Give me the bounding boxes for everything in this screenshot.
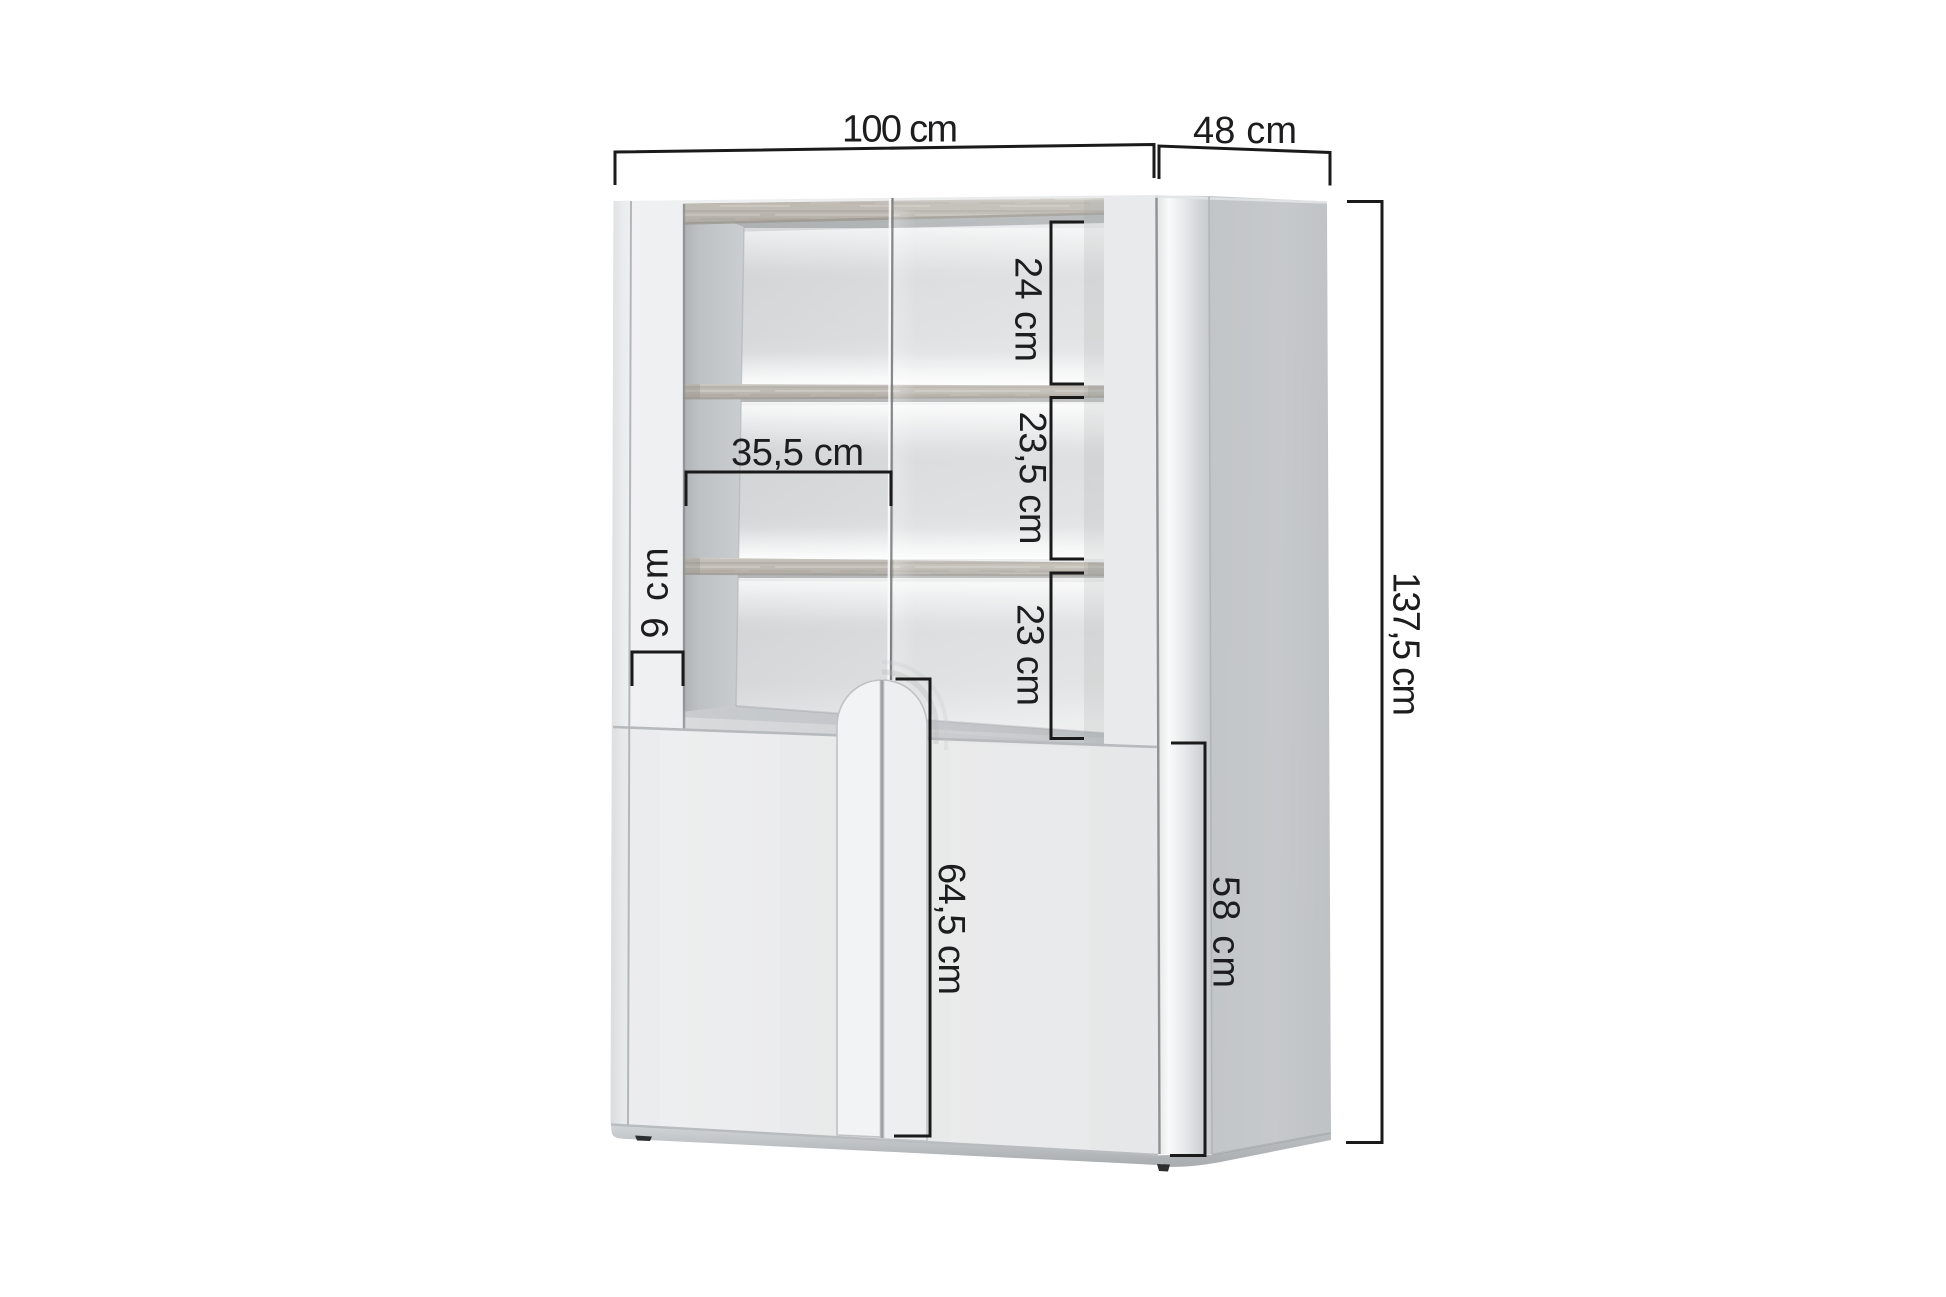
svg-text:64,5 cm: 64,5 cm — [930, 863, 972, 995]
svg-text:23 cm: 23 cm — [1009, 604, 1051, 706]
svg-text:58 cm: 58 cm — [1205, 876, 1247, 988]
svg-text:35,5 cm: 35,5 cm — [731, 432, 864, 474]
svg-text:23,5 cm: 23,5 cm — [1011, 412, 1053, 545]
svg-text:48 cm: 48 cm — [1193, 110, 1297, 152]
svg-text:100 cm: 100 cm — [842, 109, 958, 151]
svg-text:24 cm: 24 cm — [1007, 257, 1049, 362]
svg-text:137,5 cm: 137,5 cm — [1385, 572, 1427, 716]
svg-text:9 cm: 9 cm — [635, 548, 677, 639]
